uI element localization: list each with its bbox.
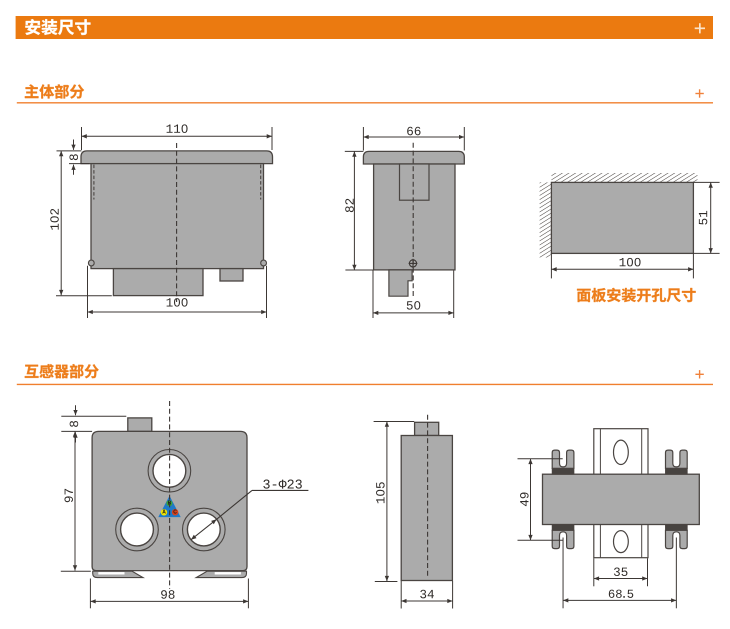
svg-text:C: C (173, 510, 177, 516)
svg-text:A: A (162, 510, 166, 516)
